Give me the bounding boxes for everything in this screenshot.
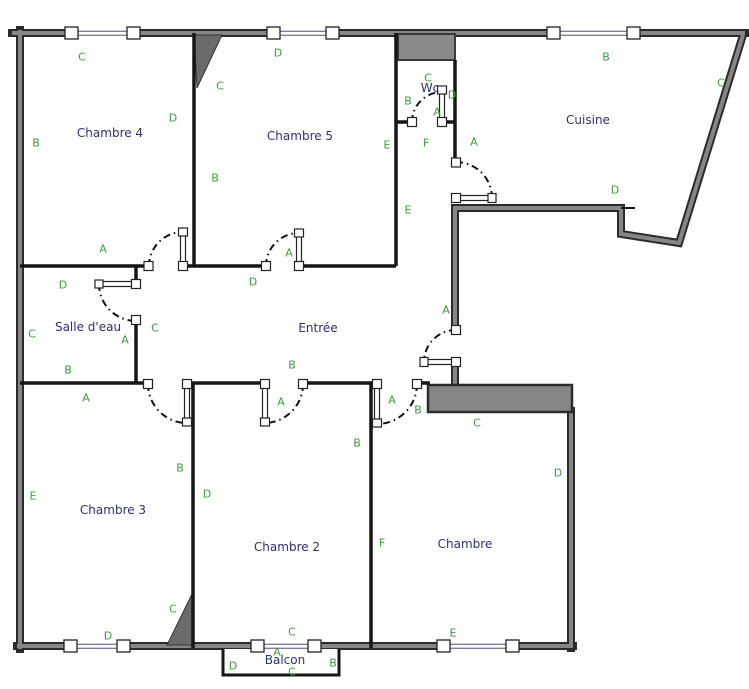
outer-walls: [12, 30, 745, 649]
floor-plan: Chambre 4Chambre 5WcCuisineSalle d'eauEn…: [0, 0, 749, 689]
doors: [95, 86, 496, 427]
thick-wall-slab: [428, 385, 572, 412]
balcony-outline: [223, 649, 339, 675]
door-chambre-2: [261, 380, 308, 427]
door-chambre-3: [144, 380, 192, 427]
door-chambre-5: [262, 229, 304, 271]
window-bottom-2: [437, 640, 519, 652]
door-entree-front: [420, 326, 461, 367]
door-chambre-4: [144, 228, 188, 271]
door-cuisine: [452, 158, 497, 203]
window-top-kitchen: [547, 27, 640, 39]
door-salle-deau: [95, 280, 141, 325]
window-bottom-1: [64, 640, 130, 652]
windows: [64, 27, 640, 652]
window-top-1: [65, 27, 140, 39]
door-wc: [408, 86, 447, 127]
door-chambre: [373, 380, 422, 428]
wc-duct-shaft: [398, 34, 455, 60]
window-top-2: [267, 27, 339, 39]
interior-walls: [20, 33, 456, 648]
floorplan-svg: [0, 0, 749, 689]
